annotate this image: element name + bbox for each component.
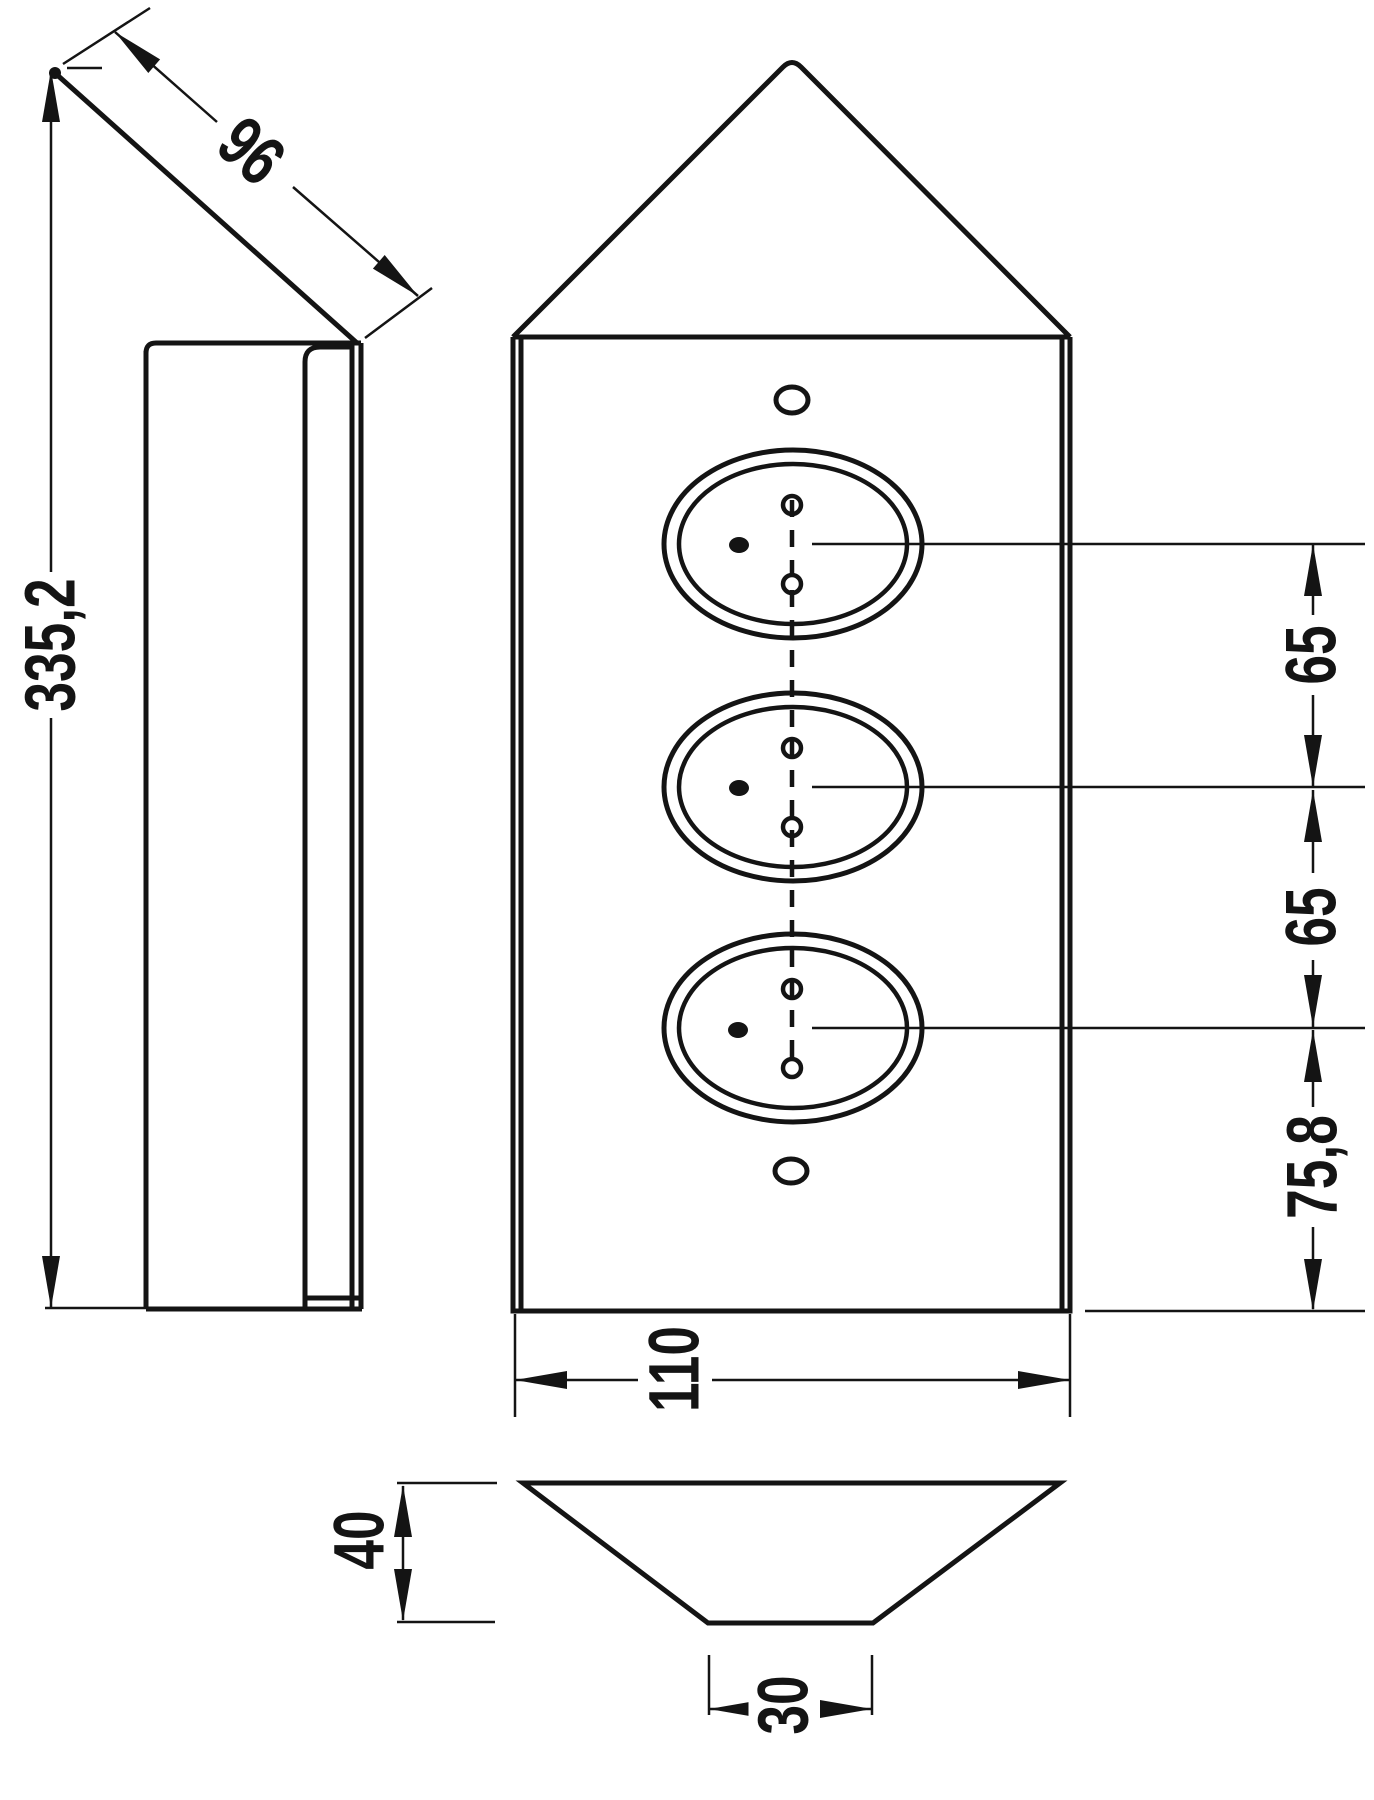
earth-clip-bottom <box>783 1059 801 1077</box>
pin-hole <box>728 1022 748 1038</box>
dim-socket-spacing-upper-label: 65 <box>1277 621 1348 689</box>
screw-hole-bottom <box>775 1159 807 1183</box>
bottom-view-profile <box>523 1483 1060 1623</box>
pin-hole <box>729 780 749 796</box>
dim-40-lines <box>394 1483 497 1622</box>
screw-hole-top <box>776 387 808 413</box>
dim-bottom-socket-offset-label: 75,8 <box>1278 1111 1349 1224</box>
dim-base-width-label: 30 <box>749 1671 820 1739</box>
dim-socket-spacing-lower-label: 65 <box>1277 883 1348 951</box>
drawing-sheet: 335,2 96 65 65 75,8 110 40 30 <box>0 0 1374 1800</box>
side-view <box>146 343 362 1309</box>
gable-top-edge <box>513 63 1070 338</box>
dim-total-height-label: 335,2 <box>16 574 87 716</box>
dim-front-width-label: 110 <box>640 1322 711 1417</box>
dim-110-lines <box>515 1314 1070 1417</box>
technical-drawing-canvas <box>0 0 1374 1800</box>
dim-profile-depth-label: 40 <box>325 1506 396 1574</box>
pin-hole <box>729 537 749 553</box>
